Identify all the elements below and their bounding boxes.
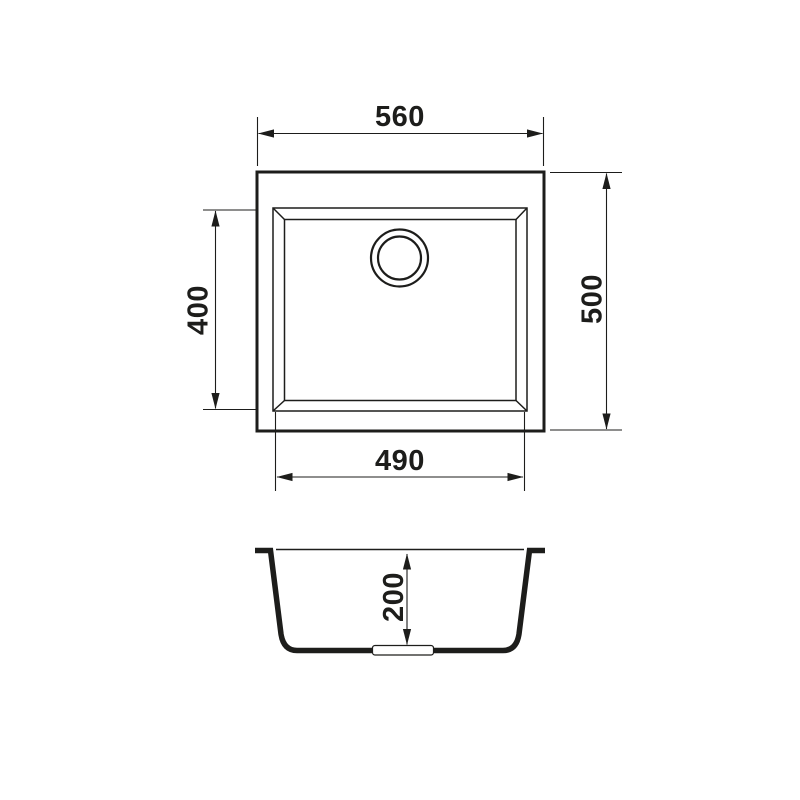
dimension-bowl-depth: 400 [183, 210, 259, 410]
sink-outer-edge [257, 172, 544, 431]
rim-miter-bottom-right [516, 401, 527, 412]
dim-label-overall-depth: 500 [577, 274, 609, 324]
dim-label-bowl-depth: 400 [183, 285, 215, 335]
dim-label-overall-width: 560 [375, 101, 425, 133]
rim-miter-top-right [516, 208, 527, 220]
sink-technical-drawing: 560 500 400 490 [0, 0, 800, 800]
drawing-canvas: 560 500 400 490 [0, 0, 800, 800]
drain-slot [373, 646, 434, 656]
drain-inner-circle [378, 237, 421, 280]
bowl-rim-outer-edge [273, 208, 527, 411]
rim-miter-top-left [273, 208, 285, 220]
dim-label-bowl-height: 200 [378, 572, 410, 622]
dim-label-bowl-width: 490 [375, 445, 425, 477]
dimension-bowl-height: 200 [378, 554, 410, 645]
dimension-overall-width: 560 [258, 101, 544, 166]
rim-miter-bottom-left [273, 401, 285, 412]
dimension-bowl-width: 490 [276, 412, 525, 491]
top-view: 560 500 400 490 [183, 101, 623, 491]
drain-outer-circle [371, 230, 428, 287]
dimension-overall-depth: 500 [550, 173, 622, 431]
bowl-rim-inner-edge [285, 220, 517, 401]
section-view: 200 [255, 550, 545, 656]
